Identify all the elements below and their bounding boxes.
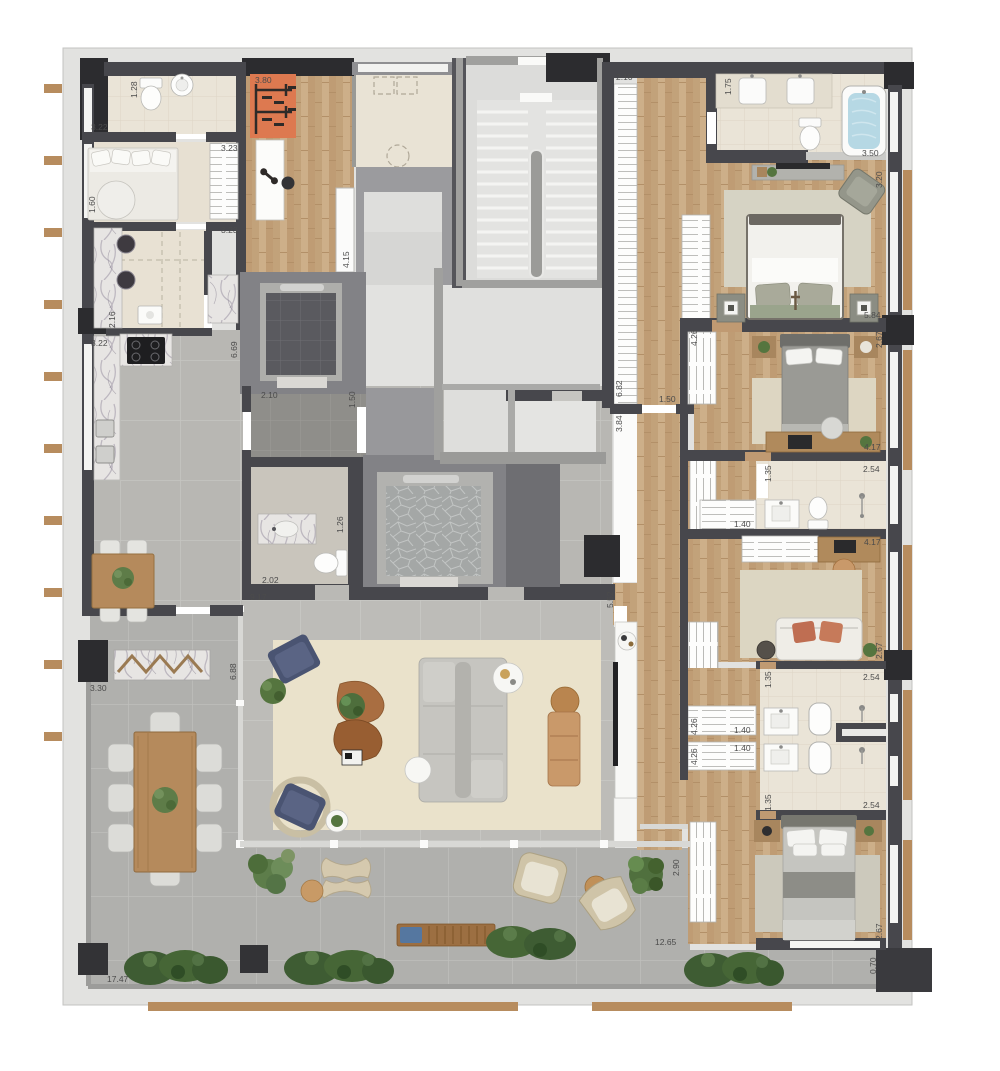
svg-text:2.02: 2.02 (262, 575, 279, 585)
svg-text:3.22: 3.22 (91, 122, 108, 132)
svg-text:1.40: 1.40 (734, 725, 751, 735)
svg-text:17.47: 17.47 (107, 974, 129, 984)
svg-text:3.23: 3.23 (221, 225, 238, 235)
svg-text:4.26: 4.26 (689, 748, 699, 765)
svg-text:5.84: 5.84 (864, 310, 881, 320)
svg-text:0.70: 0.70 (868, 957, 878, 974)
svg-text:1.50: 1.50 (659, 394, 676, 404)
svg-text:2.54: 2.54 (863, 464, 880, 474)
svg-text:12.65: 12.65 (655, 937, 677, 947)
svg-text:5.52: 5.52 (605, 591, 615, 608)
svg-text:1.40: 1.40 (734, 743, 751, 753)
svg-text:1.28: 1.28 (129, 81, 139, 98)
svg-text:3.50: 3.50 (862, 148, 879, 158)
svg-text:4.17: 4.17 (864, 537, 881, 547)
svg-text:6.69: 6.69 (229, 341, 239, 358)
svg-text:1.75: 1.75 (723, 78, 733, 95)
svg-text:2.10: 2.10 (261, 390, 278, 400)
svg-text:6.88: 6.88 (228, 663, 238, 680)
svg-text:1.50: 1.50 (347, 391, 357, 408)
svg-text:9.17: 9.17 (250, 592, 267, 602)
svg-text:2.54: 2.54 (863, 672, 880, 682)
svg-text:2.90: 2.90 (671, 859, 681, 876)
svg-text:4.26: 4.26 (689, 718, 699, 735)
svg-text:1.35: 1.35 (763, 465, 773, 482)
svg-text:3.23: 3.23 (221, 143, 238, 153)
svg-text:3.84: 3.84 (614, 415, 624, 432)
svg-text:1.35: 1.35 (763, 794, 773, 811)
svg-text:2.67: 2.67 (874, 923, 884, 940)
svg-text:4.17: 4.17 (864, 442, 881, 452)
svg-text:1.40: 1.40 (734, 519, 751, 529)
svg-text:6.82: 6.82 (614, 380, 624, 397)
svg-text:2.67: 2.67 (874, 331, 884, 348)
svg-text:3.22: 3.22 (91, 338, 108, 348)
svg-text:2.54: 2.54 (863, 800, 880, 810)
svg-text:4.15: 4.15 (341, 251, 351, 268)
svg-text:2.67: 2.67 (874, 642, 884, 659)
svg-text:3.30: 3.30 (90, 683, 107, 693)
svg-text:4.26: 4.26 (689, 329, 699, 346)
svg-text:1.26: 1.26 (335, 516, 345, 533)
svg-text:2.10: 2.10 (616, 72, 633, 82)
svg-text:1.35: 1.35 (763, 671, 773, 688)
svg-text:3.80: 3.80 (255, 75, 272, 85)
svg-text:2.16: 2.16 (107, 311, 117, 328)
svg-text:1.60: 1.60 (87, 196, 97, 213)
svg-text:3.20: 3.20 (874, 171, 884, 188)
